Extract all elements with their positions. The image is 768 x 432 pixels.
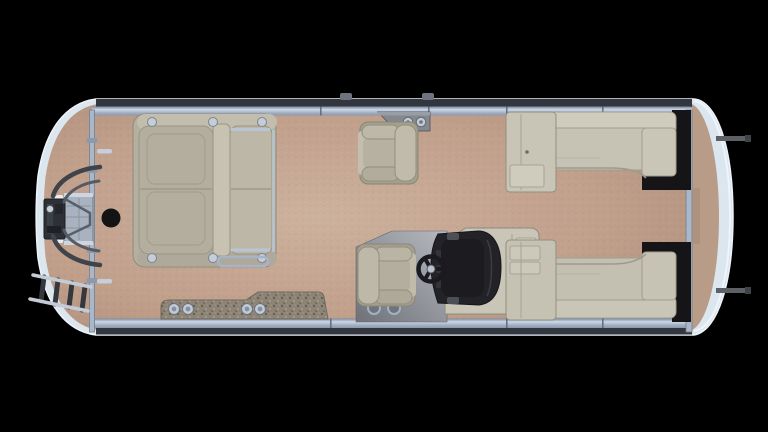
slide-rail: [230, 128, 270, 131]
bow-rail-stub: [97, 279, 112, 284]
stern-gate-door: [692, 188, 700, 244]
wheel-hub: [427, 265, 435, 273]
slide-rail: [230, 249, 270, 252]
cabinet-drawer: [510, 165, 544, 187]
bow-lounge-group: [133, 114, 277, 267]
cabinet-drawer: [510, 246, 540, 260]
cleat-tip: [745, 135, 751, 142]
windshield-inner-panel: [441, 239, 484, 297]
motor-knob: [47, 206, 54, 213]
trolling-motor: [44, 199, 65, 239]
windshield-tab: [447, 233, 459, 240]
chair-armrest: [375, 247, 412, 261]
lounge-corner-wrap: [642, 128, 676, 176]
chair-armrest: [362, 167, 399, 181]
lounge-corner-wrap: [642, 252, 676, 300]
cleat-tip: [745, 287, 751, 294]
cabinet-handle: [525, 150, 529, 154]
top-frame-shadow: [96, 99, 692, 107]
bimini-fitting: [340, 93, 352, 100]
motor-mount: [47, 226, 61, 233]
bow-rail-stub: [97, 149, 112, 154]
lounge-center-backrest: [213, 124, 230, 256]
lounge-right-cushion: [230, 126, 272, 254]
chair-backrest: [395, 125, 416, 181]
slide-rail: [272, 130, 275, 252]
captain-chair: [357, 244, 416, 306]
chair-armrest: [362, 125, 399, 139]
caddy-cupholder-center: [419, 120, 423, 124]
cabinet-drawer: [510, 262, 540, 274]
chair-seat: [363, 138, 396, 168]
table-pedestal-base: [102, 209, 121, 228]
chair-seat: [378, 259, 410, 291]
lounge-left-cushion: [139, 126, 213, 254]
bottom-frame-shadow: [96, 328, 692, 335]
boat: [30, 93, 751, 335]
motor-head: [55, 204, 63, 214]
chair-backrest: [358, 247, 379, 304]
caddy-top-edge: [378, 112, 430, 116]
bimini-fitting: [422, 93, 434, 100]
boat-floorplan: [0, 0, 768, 432]
windshield-tab: [447, 297, 459, 304]
companion-chair: [358, 122, 418, 184]
chair-armrest: [375, 290, 412, 304]
